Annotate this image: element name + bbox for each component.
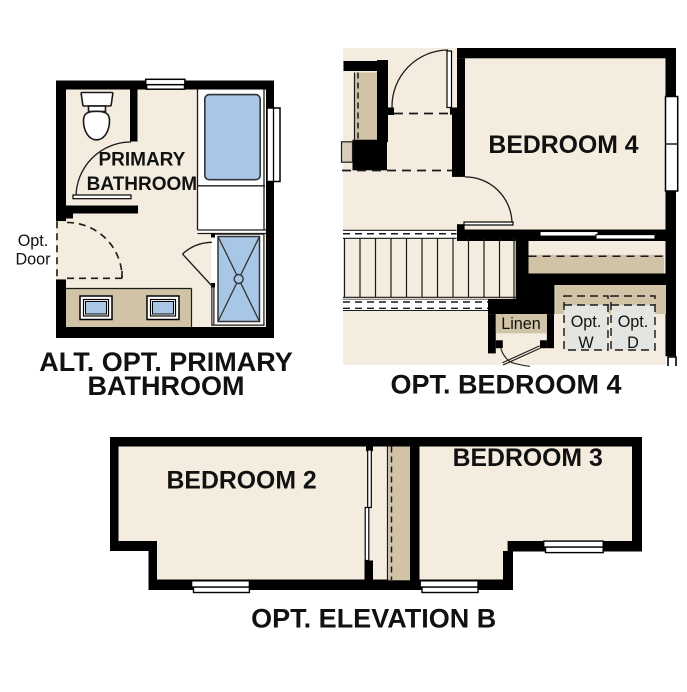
- svg-text:OPT. ELEVATION B: OPT. ELEVATION B: [251, 603, 496, 633]
- svg-text:Opt.: Opt.: [571, 313, 602, 331]
- svg-text:OPT. BEDROOM 4: OPT. BEDROOM 4: [390, 369, 621, 399]
- svg-text:D: D: [627, 334, 639, 352]
- svg-text:Linen: Linen: [501, 315, 541, 333]
- svg-text:PRIMARY: PRIMARY: [98, 149, 185, 170]
- svg-text:BATHROOM: BATHROOM: [87, 174, 197, 195]
- svg-text:Opt.: Opt.: [18, 232, 49, 250]
- svg-text:W: W: [578, 334, 594, 352]
- svg-text:Door: Door: [15, 250, 51, 268]
- svg-text:BEDROOM 3: BEDROOM 3: [453, 445, 603, 472]
- svg-text:Opt.: Opt.: [618, 313, 649, 331]
- svg-text:BATHROOM: BATHROOM: [88, 371, 245, 401]
- svg-text:BEDROOM 4: BEDROOM 4: [488, 132, 638, 159]
- svg-text:BEDROOM 2: BEDROOM 2: [167, 467, 317, 494]
